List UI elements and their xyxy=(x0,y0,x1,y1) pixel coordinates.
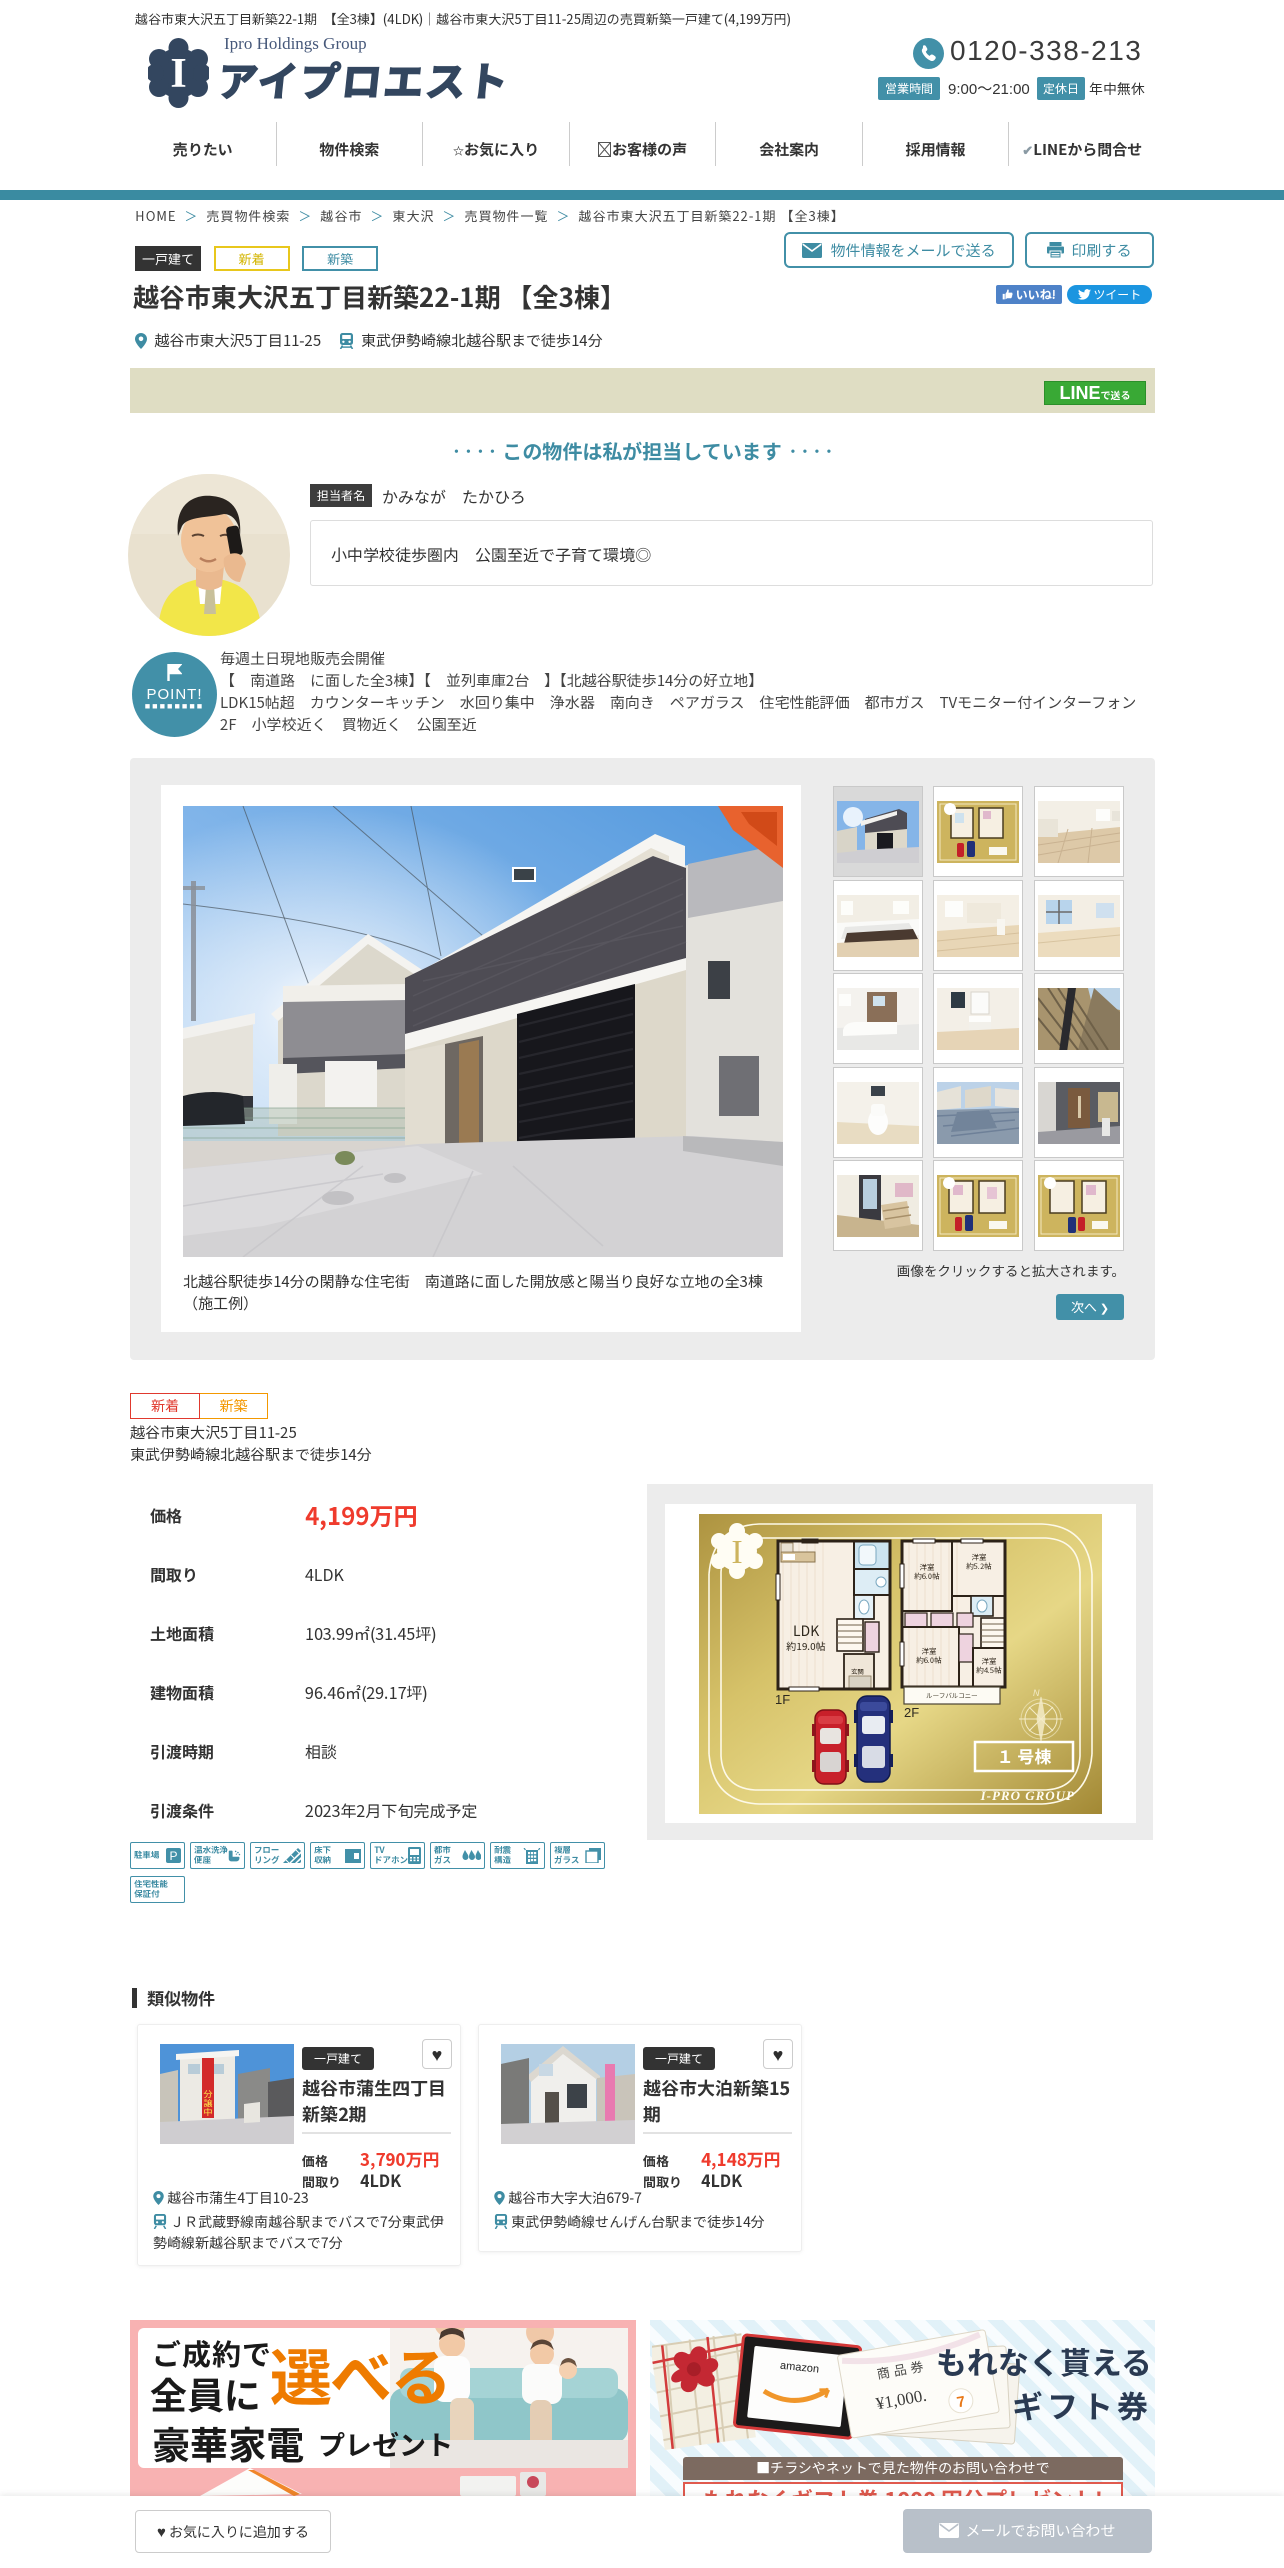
svg-text:ルーフバルコニー: ルーフバルコニー xyxy=(926,1690,977,1700)
svg-text:約5.2帖: 約5.2帖 xyxy=(965,1561,992,1572)
svg-text:約19.0帖: 約19.0帖 xyxy=(786,1638,825,1653)
svg-text:P: P xyxy=(169,1849,177,1863)
svg-text:分譲中: 分譲中 xyxy=(202,2089,215,2116)
svg-text:I: I xyxy=(170,51,186,97)
svg-text:約4.5帖: 約4.5帖 xyxy=(975,1665,1002,1676)
svg-text:2F: 2F xyxy=(904,1705,919,1720)
svg-text:１ 号棟: １ 号棟 xyxy=(997,1743,1053,1768)
svg-text:N: N xyxy=(1033,1688,1040,1698)
svg-text:玄関: 玄関 xyxy=(851,1666,864,1676)
svg-text:I-PRO GROUP: I-PRO GROUP xyxy=(980,1788,1075,1803)
svg-text:約6.0帖: 約6.0帖 xyxy=(915,1655,942,1666)
svg-text:約6.0帖: 約6.0帖 xyxy=(913,1571,940,1582)
svg-text:1F: 1F xyxy=(775,1692,790,1707)
svg-text:I: I xyxy=(731,1534,742,1571)
